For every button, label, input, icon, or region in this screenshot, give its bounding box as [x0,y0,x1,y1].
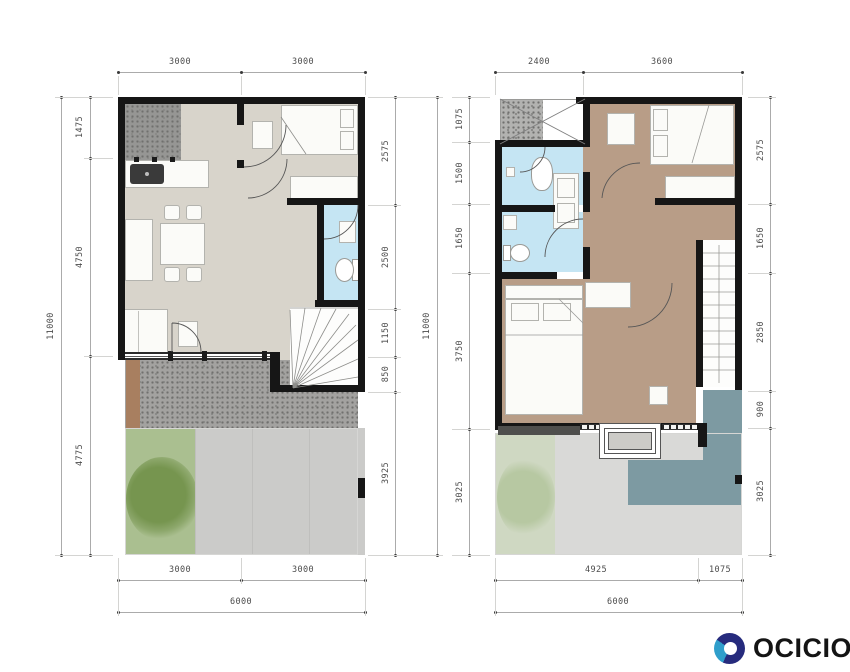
dim-label: 2400 [528,58,550,67]
dim-tick [582,71,585,74]
ext-line [452,555,490,556]
dim-label: 900 [757,401,766,418]
ext-line [742,558,743,616]
ext-line [495,558,496,616]
dim-tick [741,71,744,74]
brand-logo-icon [714,633,745,664]
dim-label: 3025 [757,480,766,502]
ext-line [748,428,776,429]
dim-line [770,97,771,555]
dim-line [495,580,742,581]
dim-label: 3025 [456,481,465,503]
ext-line [583,76,584,95]
dim-label: 3600 [651,58,673,67]
dim-tick [494,71,497,74]
ext-line [452,429,490,430]
ext-line [495,76,496,95]
dim-line [495,612,742,613]
ext-line [698,558,699,584]
floorplan-canvas: 3000 3000 3000 3000 6000 1475 4750 4775 … [0,0,850,672]
brand-logo-text: OCICIO [753,633,850,664]
dim-label: 1500 [456,162,465,184]
dim-label: 2850 [757,321,766,343]
dim-label: 1075 [709,566,731,575]
dim-line [469,97,470,555]
upper-floor-dimensions: 2400 3600 4925 1075 6000 1075 1500 1650 … [0,0,850,672]
dim-label: 2575 [757,139,766,161]
dim-label: 6000 [607,598,629,607]
brand-logo: OCICIO [714,633,850,664]
ext-line [452,204,490,205]
dim-label: 1650 [757,227,766,249]
ext-line [748,273,776,274]
ext-line [452,273,490,274]
ext-line [452,97,490,98]
dim-label: 3750 [456,340,465,362]
dim-line [495,72,742,73]
ext-line [452,142,490,143]
dim-label: 4925 [585,566,607,575]
ext-line [742,76,743,95]
ext-line [748,391,776,392]
ext-line [748,97,776,98]
ext-line [748,555,776,556]
dim-label: 1075 [456,108,465,130]
dim-label: 1650 [456,227,465,249]
ext-line [748,204,776,205]
